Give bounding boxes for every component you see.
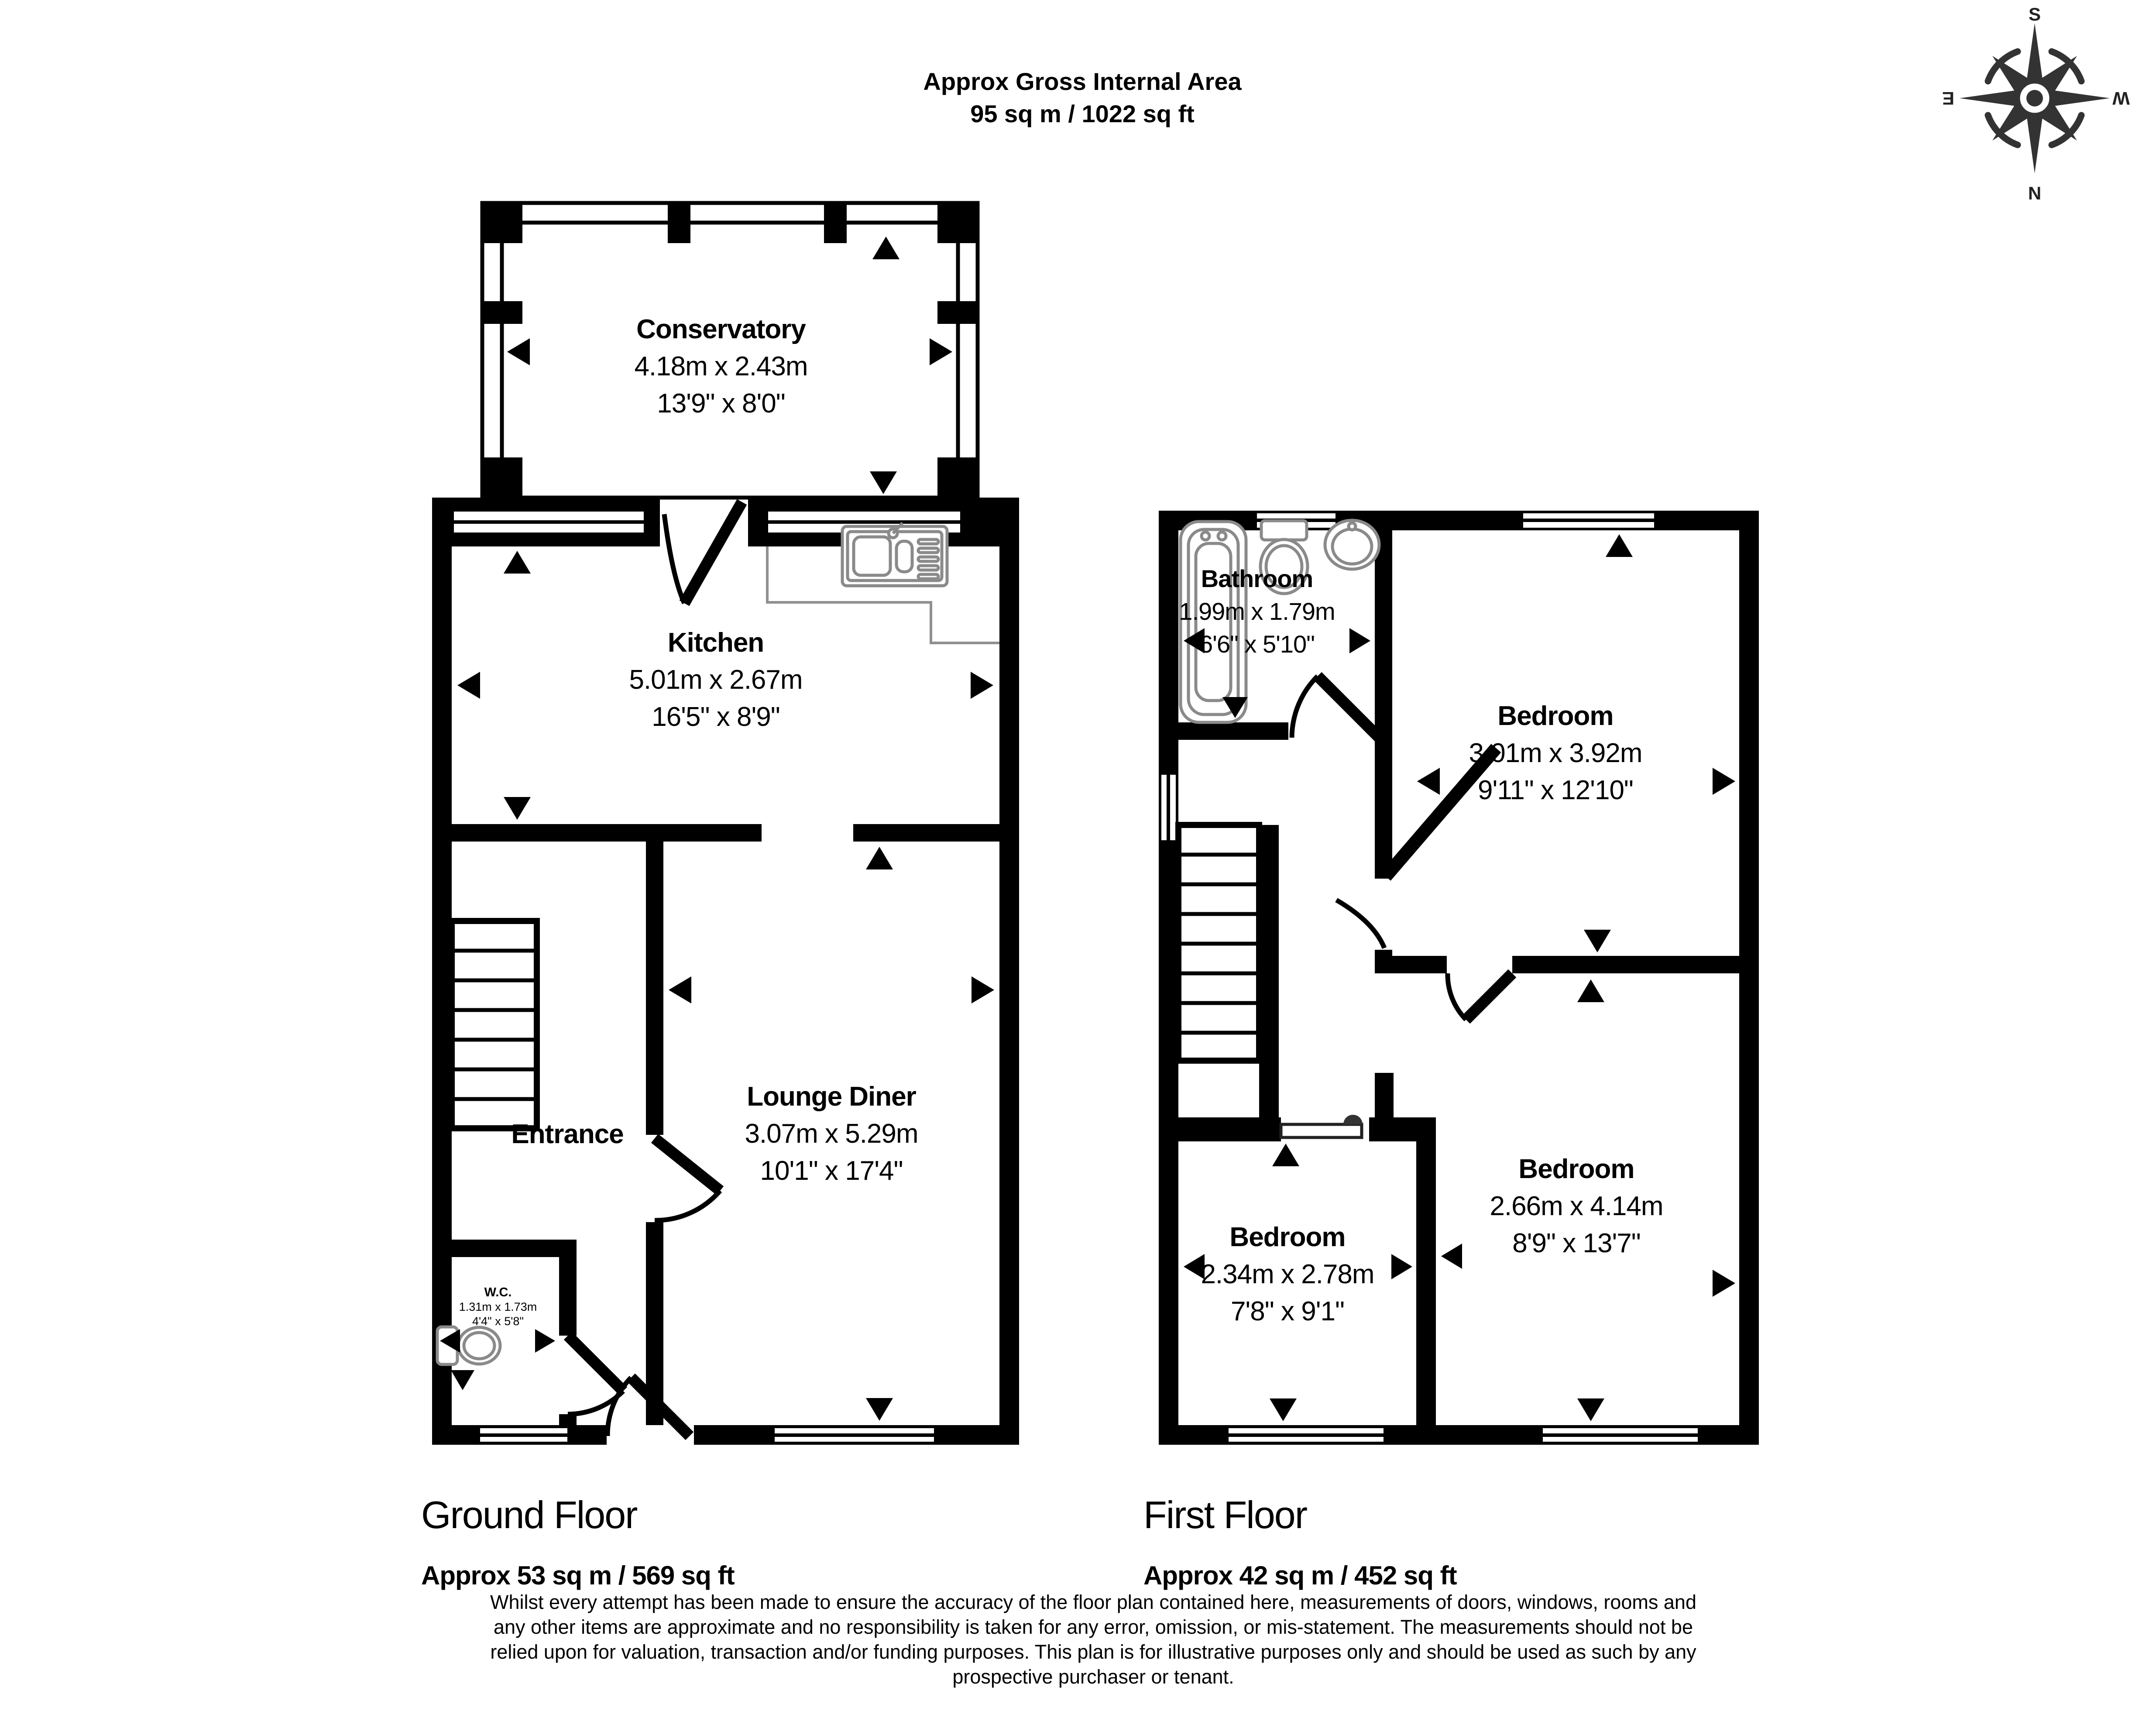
room-label-kitchen: Kitchen 5.01m x 2.67m 16'5" x 8'9" (629, 624, 802, 735)
floorplan-page: { "header": { "title": "Approx Gross Int… (0, 0, 2156, 1711)
ground-floor-heading: Ground Floor (421, 1493, 637, 1537)
first-floor-area: Approx 42 sq m / 452 sq ft (1143, 1560, 1457, 1591)
kitchen-lounge-wall (452, 824, 999, 842)
room-label-lounge-diner: Lounge Diner 3.07m x 5.29m 10'1" x 17'4" (745, 1078, 918, 1189)
lounge-door (655, 1138, 720, 1220)
room-label-entrance: Entrance (511, 1116, 623, 1153)
room-label-bathroom: Bathroom 1.99m x 1.79m 6'6" x 5'10" (1179, 562, 1335, 660)
bedroom2-door (1281, 1115, 1363, 1137)
floorplan-drawing: S N E W (0, 0, 2156, 1711)
first-stairs-icon (1178, 825, 1259, 1061)
header-area: 95 sq m / 1022 sq ft (923, 98, 1241, 130)
hall-lounge-wall (646, 824, 663, 1425)
compass-south-label: S (2029, 4, 2041, 24)
room-label-bedroom-1: Bedroom 3.01m x 3.92m 9'11" x 12'10" (1469, 697, 1642, 809)
room-label-bedroom-2: Bedroom 2.34m x 2.78m 7'8" x 9'1" (1201, 1219, 1374, 1330)
compass-north-label: N (2028, 183, 2041, 203)
ground-floor-area: Approx 53 sq m / 569 sq ft (421, 1560, 735, 1591)
room-label-bedroom-3: Bedroom 2.66m x 4.14m 8'9" x 13'7" (1490, 1151, 1663, 1262)
disclaimer-text: Whilst every attempt has been made to en… (490, 1590, 1696, 1689)
compass-icon: S N E W (1942, 4, 2130, 203)
room-label-conservatory: Conservatory 4.18m x 2.43m 13'9" x 8'0" (634, 311, 807, 422)
kitchen-sink-icon (842, 523, 947, 586)
wc-toilet-icon (437, 1327, 500, 1364)
ground-stairs-icon (452, 921, 537, 1128)
conservatory-door (664, 502, 742, 603)
compass-west-label: W (2112, 88, 2130, 109)
bedroom3-door (1448, 973, 1512, 1020)
room-label-wc: W.C. 1.31m x 1.73m 4'4" x 5'8" (459, 1285, 537, 1329)
bathroom-door (1292, 676, 1379, 738)
first-floor-heading: First Floor (1143, 1493, 1307, 1537)
header-title: Approx Gross Internal Area (923, 65, 1241, 98)
gross-internal-area-header: Approx Gross Internal Area 95 sq m / 102… (923, 65, 1241, 130)
compass-east-label: E (1942, 88, 1954, 109)
